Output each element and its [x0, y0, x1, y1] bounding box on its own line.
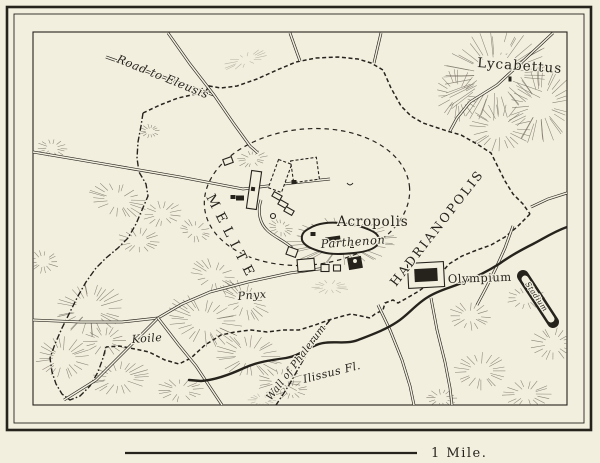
athens-environs-map: Road to EleusisLycabettusMELITEAcropolis…: [0, 0, 600, 463]
erechtheum: [311, 232, 316, 236]
lycabettus-chapel: [509, 77, 512, 82]
small-dark-b: [231, 195, 236, 199]
agora-block-b: [291, 157, 320, 182]
map-page: Road to EleusisLycabettusMELITEAcropolis…: [0, 0, 600, 463]
acropolis-label: Acropolis: [336, 214, 408, 230]
scale-label: 1 Mile.: [431, 446, 487, 461]
small-dark-a: [236, 196, 244, 201]
south-slope-a: [321, 265, 329, 272]
koile-label: Koile: [130, 331, 162, 346]
agora-dot: [292, 180, 297, 184]
tholos: [271, 214, 276, 219]
theatre-cavea: [353, 259, 358, 264]
lycabettus-summit: [499, 42, 511, 54]
pnyx-label: Pnyx: [236, 287, 267, 303]
olympium-label: Olympium: [448, 270, 512, 286]
olympium-temple: [414, 268, 438, 282]
stoa-dot: [251, 187, 256, 192]
odeum: [297, 258, 315, 271]
south-slope-b: [334, 265, 341, 271]
